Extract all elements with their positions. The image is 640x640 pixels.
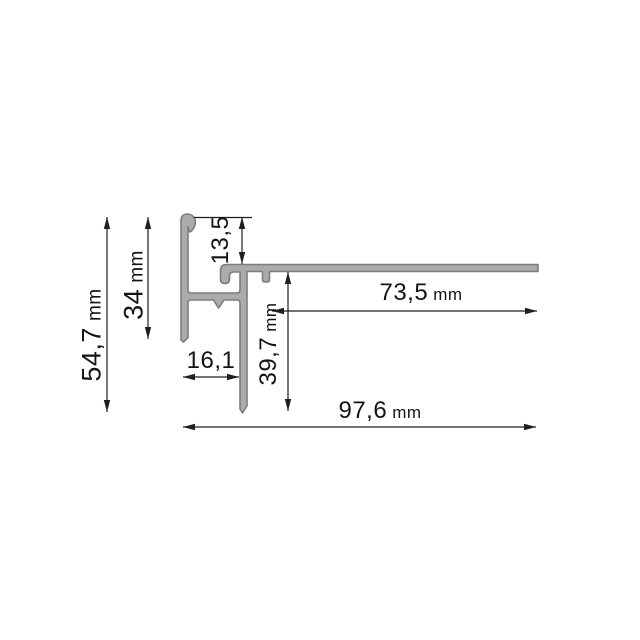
technical-drawing-canvas: 54,7mm 34mm 13,5 39,7mm 16,1 73,5mm 97,6… [0,0,640,640]
dimension-value: 34 [119,289,149,320]
dimension-label-total-width: 97,6mm [338,399,421,423]
dimension-value: 54,7 [77,327,107,382]
dimension-value: 16,1 [187,347,236,374]
dimension-unit: mm [127,250,148,283]
dimension-unit: mm [85,288,106,321]
dimension-unit: mm [433,285,462,304]
dimension-unit: mm [261,302,280,331]
dimension-label-right-wall-height: 39,7mm [257,302,281,385]
dimension-label-top-offset: 13,5 [209,216,233,265]
dimension-value: 97,6 [338,397,387,424]
dimension-unit: mm [392,403,421,422]
dimension-value: 39,7 [255,337,282,386]
dimension-label-flange-length: 73,5mm [379,281,462,305]
dimension-value: 73,5 [379,279,428,306]
dimension-label-left-wall-height: 34mm [121,250,148,320]
dimension-label-left-width: 16,1 [187,349,236,373]
dimension-label-total-height: 54,7mm [79,288,106,381]
dimension-value: 13,5 [207,216,234,265]
profile-cross-section [181,214,538,413]
